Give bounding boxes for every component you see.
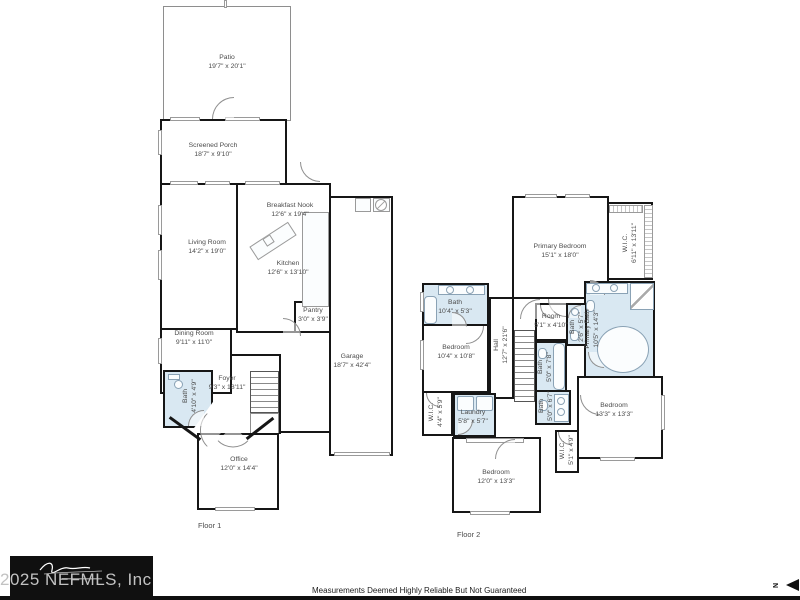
- sink-fixture: [592, 284, 600, 292]
- window: [215, 507, 255, 511]
- window: [170, 181, 198, 185]
- room-label-primary-wic: W.I.C.6'11" x 13'11": [621, 223, 639, 263]
- window: [600, 457, 635, 461]
- room-label-bedroom3: Bedroom12'0" x 13'3": [477, 468, 514, 486]
- utility-unit-fixture: [355, 198, 371, 212]
- bathtub-fixture: [424, 296, 437, 324]
- window: [170, 117, 200, 121]
- room-label-laundry: Laundry5'8" x 5'7": [458, 408, 488, 426]
- room-label-bath3: Bath2'6" x 5'7": [568, 312, 586, 342]
- disclaimer-text: Measurements Deemed Highly Reliable But …: [312, 586, 526, 595]
- window: [470, 511, 510, 515]
- room-label-office: Office12'0" x 14'4": [220, 455, 257, 473]
- bathtub-fixture: [597, 326, 649, 373]
- window: [420, 340, 424, 370]
- room-label-primary-bedroom: Primary Bedroom15'1" x 18'0": [534, 242, 587, 260]
- staircase-floor1: [250, 371, 279, 413]
- room-label-bath1: Bath4'10" x 4'9": [181, 379, 199, 413]
- room-label-breakfast-nook: Breakfast Nook12'6" x 19'4": [267, 201, 313, 219]
- room-label-bath2: Bath10'4" x 5'3": [438, 298, 472, 316]
- room-label-bedroom4: Bedroom13'3" x 13'3": [595, 401, 632, 419]
- window: [158, 205, 162, 235]
- garage-outline: [329, 196, 393, 456]
- room-label-pantry: Pantry3'0" x 3'9": [298, 306, 328, 324]
- foyer-bottom-wall: [279, 431, 330, 433]
- closet-shelving: [644, 205, 653, 278]
- window: [661, 395, 665, 430]
- floor2-caption: Floor 2: [457, 530, 480, 539]
- window: [158, 338, 162, 364]
- patio-edge-mark: [224, 0, 227, 8]
- water-heater-circle: [375, 199, 387, 211]
- room-label-kitchen: Kitchen12'6" x 13'10": [267, 259, 308, 277]
- window: [245, 181, 280, 185]
- north-arrow-icon: [786, 579, 799, 591]
- sink-fixture: [557, 397, 565, 405]
- bottom-border-strip: [0, 596, 800, 600]
- room-label-wic2: W.I.C.4'4" x 5'9": [427, 397, 445, 427]
- room-label-bath5: Bath5'0" x 6'7": [537, 391, 555, 421]
- room-label-bath4: Bath5'0" x 7'8": [536, 352, 554, 382]
- closet-shelving: [609, 205, 643, 213]
- room-label-garage: Garage18'7" x 42'4": [333, 352, 370, 370]
- room-label-wic3: W.I.C.5'1" x 4'9": [558, 435, 576, 465]
- garage-door-opening: [334, 452, 390, 456]
- watermark-text: 2025 NEFMLS, Inc: [0, 570, 152, 590]
- window: [525, 194, 557, 198]
- foyer-top-wall: [232, 354, 281, 356]
- foyer-right-wall: [279, 354, 281, 434]
- living-room-outline: [160, 183, 238, 330]
- room-label-screened-porch: Screened Porch18'7" x 9'10": [189, 141, 238, 159]
- window: [158, 250, 162, 280]
- sink-fixture: [466, 286, 474, 294]
- window: [205, 181, 230, 185]
- room-label-living-room: Living Room14'2" x 19'0": [188, 238, 226, 256]
- floorplan-image: Patio19'7" x 20'1" Screened Porch18'7" x…: [0, 0, 800, 600]
- staircase-floor2: [514, 330, 535, 402]
- floor1-caption: Floor 1: [198, 521, 221, 530]
- porch-door-arc: [300, 162, 320, 182]
- room-label-foyer: Foyer9'3" x 18'11": [209, 374, 246, 392]
- room-label-room: Room5'1" x 4'10": [534, 312, 568, 330]
- north-label: N: [773, 583, 780, 588]
- bay-window-seat: [466, 438, 524, 443]
- window: [158, 130, 162, 155]
- room-label-patio: Patio19'7" x 20'1": [208, 53, 245, 71]
- sink-fixture: [168, 374, 180, 380]
- sink-fixture: [446, 286, 454, 294]
- room-label-bedroom2: Bedroom10'4" x 10'8": [437, 343, 474, 361]
- room-label-dining-room: Dining Room9'11" x 11'0": [174, 329, 213, 347]
- window: [565, 194, 590, 198]
- shower-fixture: [630, 283, 654, 310]
- bathtub-fixture: [553, 343, 565, 390]
- room-label-hall: Hall12'7" x 21'6": [492, 326, 510, 363]
- sink-fixture: [557, 408, 565, 416]
- sink-fixture: [610, 284, 618, 292]
